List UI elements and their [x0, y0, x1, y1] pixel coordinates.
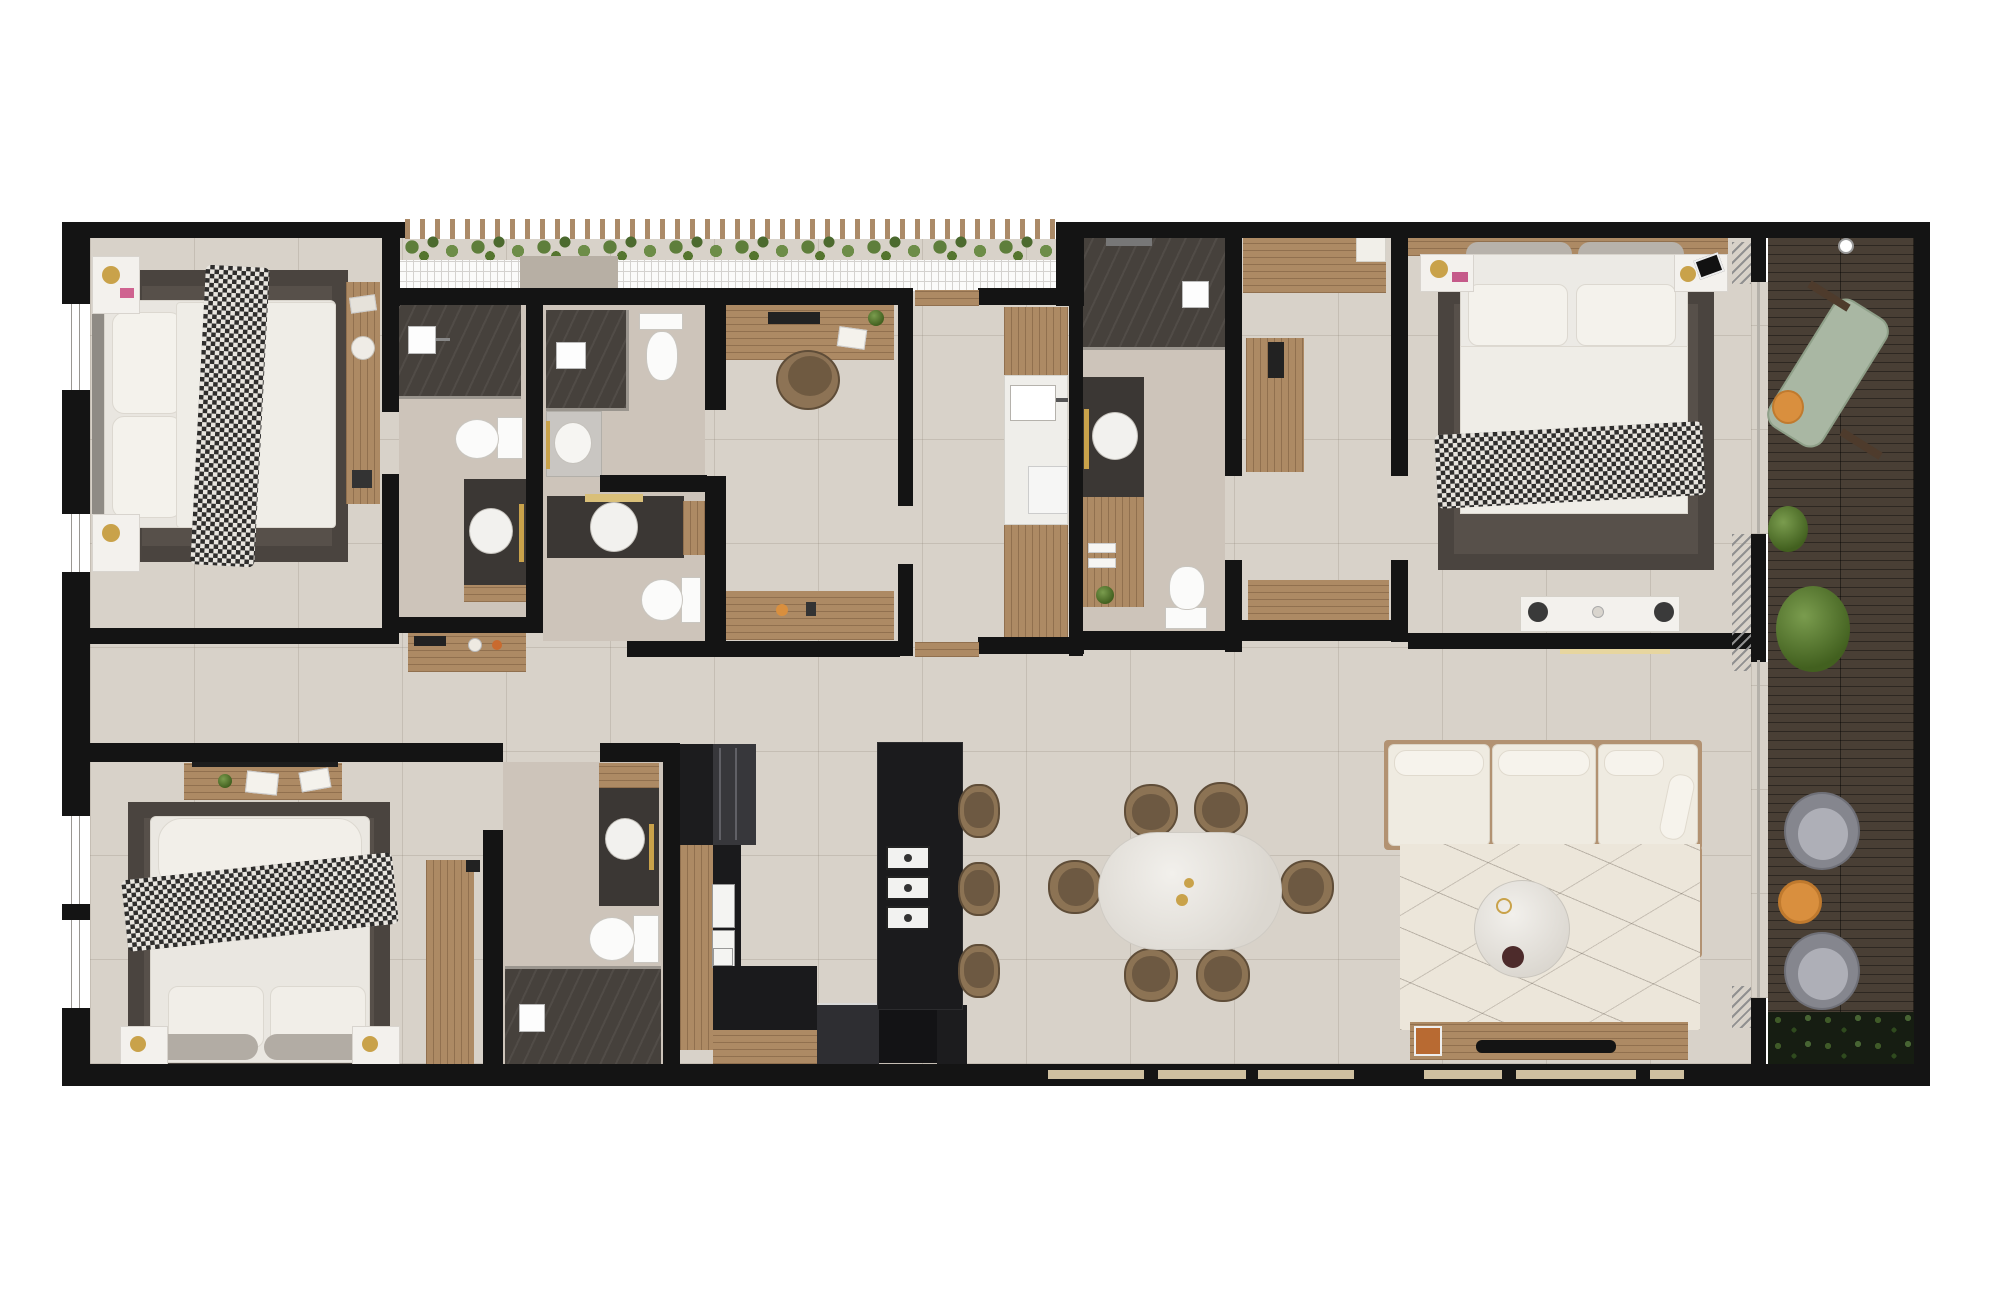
bath3-shelf: [683, 501, 705, 555]
wall-balcony-upper: [1751, 222, 1766, 282]
laundry-cabinet-top: [1004, 307, 1068, 375]
kitchen-counter-wood-bottom: [713, 1030, 817, 1064]
threshold-corridor-bottom: [915, 642, 979, 657]
kitchen-counter-black-end: [937, 1005, 967, 1064]
bedroom1-nightstand-top: [92, 256, 140, 314]
dining-table-candle-2: [1176, 894, 1188, 906]
closet-bench: [1248, 580, 1389, 621]
bedroom1-pillow-2: [112, 416, 182, 518]
balcony-ceiling-light: [1838, 238, 1854, 254]
laundry-faucet: [1056, 398, 1068, 402]
dining-chair-5-seat: [1132, 956, 1170, 992]
sofa-back-cushion-3: [1604, 750, 1664, 776]
wall-top-b: [1056, 222, 1930, 238]
glass-strip-bottom-6: [1650, 1070, 1684, 1079]
master-lamp-left: [1430, 260, 1448, 278]
bath4-towel-1: [1088, 543, 1116, 553]
glass-strip-bottom-3: [1258, 1070, 1354, 1079]
window-left-3: [62, 816, 90, 904]
bath1-shower-arm: [436, 338, 450, 341]
bath4-toilet-tank: [1165, 607, 1207, 629]
master-led-strip: [1560, 649, 1670, 654]
hall-credenza-bowl: [468, 638, 482, 652]
kitchen-fridge-handle-1: [719, 748, 721, 840]
balcony-side-table-2: [1778, 880, 1822, 924]
bath5-vanity-woodtop: [599, 763, 659, 788]
dining-chair-6-seat: [1204, 956, 1242, 992]
bath5-shower-glass: [505, 966, 661, 969]
bath1-shelf: [464, 585, 526, 602]
hall-credenza-flower: [492, 640, 502, 650]
office-bench-vase: [806, 602, 816, 616]
wall-closet-right-upper: [1391, 238, 1408, 476]
wall-top-a: [62, 222, 405, 238]
bedroom2-desk-plant: [218, 774, 232, 788]
bath4-towel-2: [1088, 558, 1116, 568]
wall-bath4-left: [1069, 238, 1083, 656]
glass-strip-bottom-1: [1048, 1070, 1144, 1079]
balcony-side-table-1: [1772, 390, 1804, 424]
master-book-left: [1452, 272, 1468, 282]
wall-office-top: [726, 288, 913, 305]
dining-chair-2-seat: [1202, 792, 1240, 828]
bath4-towel-bar-gold: [1084, 409, 1089, 469]
balcony-plant-small: [1768, 506, 1808, 552]
dining-chair-3-seat: [1058, 868, 1094, 906]
bedroom1-console-decor: [352, 470, 372, 488]
bath2-basin: [554, 422, 592, 464]
wall-balcony-lower: [1751, 998, 1766, 1074]
bath4-basin: [1092, 412, 1138, 460]
bath4-shower-head: [1182, 281, 1209, 308]
kitchen-fridge-handle-2: [735, 748, 737, 840]
curtain-zigzag-2: [1732, 534, 1751, 671]
laundry-washer: [1028, 466, 1068, 514]
bath4-shower-glass: [1079, 347, 1225, 350]
wall-corridor-top-right: [978, 288, 1058, 305]
island-burner-dot-1: [904, 854, 912, 862]
bath5-towel-bar-gold: [649, 824, 654, 870]
wall-bath4-bottom: [1077, 631, 1225, 650]
master-throw-houndstooth: [1434, 421, 1706, 509]
wall-bath2-top: [543, 288, 726, 305]
glass-strip-bottom-2: [1158, 1070, 1246, 1079]
bath1-toilet-bowl: [455, 419, 499, 459]
bedroom1-headboard: [92, 300, 104, 528]
bath1-shower-head: [408, 326, 436, 354]
wall-bath3-bottom: [627, 641, 726, 657]
wall-closet-right-lower: [1391, 560, 1408, 642]
master-dresser-knob: [1592, 606, 1604, 618]
office-laptop: [768, 312, 820, 324]
bedroom2-lamp-left: [130, 1036, 146, 1052]
balcony-armchair-1-cushion: [1798, 808, 1848, 860]
sliding-glass-line-1: [1757, 282, 1760, 534]
office-plant: [868, 310, 884, 326]
bath2-toilet-bowl: [646, 331, 678, 381]
wall-bath2-right-lower: [705, 476, 726, 656]
curtain-zigzag-1: [1732, 242, 1751, 284]
window-left-1: [62, 304, 90, 390]
bath5-shower-head: [519, 1004, 545, 1032]
bath1-basin: [469, 508, 513, 554]
bath1-towel-bar-gold: [519, 504, 524, 562]
kitchen-counter-black-corner: [713, 966, 817, 1030]
sofa-back-cushion-1: [1394, 750, 1484, 776]
kitchen-dishwasher: [817, 1005, 879, 1064]
wall-bath1-right: [526, 305, 543, 617]
wall-balcony-mid: [1751, 534, 1766, 662]
wall-bath4-right-lower: [1225, 560, 1242, 652]
closet-cabinet-inset: [1268, 342, 1284, 378]
wall-office-bottom: [726, 641, 900, 657]
master-pillow-left: [1468, 284, 1568, 346]
sliding-glass-line-2: [1757, 660, 1760, 998]
coffee-table-bowl: [1502, 946, 1524, 968]
kitchen-counter-wood-left: [680, 845, 713, 1050]
hall-credenza-tray: [414, 636, 446, 646]
kitchen-oven-1: [712, 884, 735, 928]
island-burner-dot-3: [904, 914, 912, 922]
closet-box-white: [1356, 236, 1386, 262]
kitchen-tall-cabinet: [680, 744, 713, 845]
bath2-toilet-tank: [639, 313, 683, 330]
balcony-planter-bed: [1768, 1012, 1914, 1064]
window-left-2: [62, 514, 90, 572]
office-bench-flower: [776, 604, 788, 616]
island-stool-2-seat: [964, 870, 994, 906]
island-stool-3-seat: [964, 952, 994, 988]
bedroom1-nightstand-bottom: [92, 514, 140, 572]
island-stool-1-seat: [964, 792, 994, 828]
glass-strip-bottom-5: [1516, 1070, 1636, 1079]
master-pillow-right: [1576, 284, 1676, 346]
bedroom1-lamp-top: [102, 266, 120, 284]
bedroom1-lamp-bottom: [102, 524, 120, 542]
kitchen-drawer-white: [713, 948, 733, 966]
balcony-plant-large: [1776, 586, 1850, 672]
wall-bath23-divider: [600, 475, 707, 492]
bedroom2-lamp-right: [362, 1036, 378, 1052]
office-chair-seat: [788, 356, 832, 396]
wall-br1-bottom: [78, 628, 399, 644]
wall-office-right-upper: [898, 288, 913, 506]
wall-br2-top: [78, 743, 503, 762]
master-lamp-right: [1680, 266, 1696, 282]
bath2-shower-glass-r: [626, 310, 629, 410]
floor-plan: [0, 0, 2000, 1300]
wall-br1-right-lower: [382, 474, 399, 630]
bedroom1-deco-book: [120, 288, 134, 298]
bath5-toilet-tank: [633, 915, 659, 963]
wall-closet-bottom: [1242, 620, 1392, 641]
bedroom2-wardrobe: [426, 860, 474, 1066]
wall-right: [1914, 222, 1930, 1074]
sofa-back-cushion-2: [1498, 750, 1590, 776]
bath3-toilet-bowl: [641, 579, 683, 621]
bath3-toilet-tank: [681, 577, 701, 623]
wall-bath2-right-upper: [705, 305, 726, 410]
bath3-light-bar: [585, 494, 643, 502]
master-speaker-left: [1528, 602, 1548, 622]
tv-panel: [1476, 1040, 1616, 1053]
glass-strip-bottom-4: [1424, 1070, 1502, 1079]
bedroom1-console-plate: [351, 336, 375, 360]
bath2-towel-bar-gold: [546, 421, 550, 469]
bedroom2-wardrobe-notch: [466, 860, 480, 872]
balcony-armchair-2-cushion: [1798, 948, 1848, 1000]
bath4-shelf-plant: [1096, 586, 1114, 604]
wall-bath1-bottom: [399, 617, 543, 633]
wall-br2-right: [483, 830, 503, 1085]
office-papers: [837, 326, 868, 350]
bedroom2-paper-1: [245, 770, 279, 795]
dining-table-candle-1: [1184, 878, 1194, 888]
wall-br1-right-upper: [382, 238, 399, 412]
window-left-4: [62, 920, 90, 1008]
laundry-cabinet-bottom: [1004, 525, 1068, 637]
wall-master-bottom: [1408, 633, 1751, 649]
laundry-sink: [1010, 385, 1056, 421]
curtain-zigzag-3: [1732, 986, 1751, 1028]
wall-bath5-right: [663, 743, 680, 1064]
bath3-basin: [590, 502, 638, 552]
wall-bath1-top: [399, 288, 543, 305]
threshold-corridor-top: [915, 290, 979, 306]
kitchen-cooktop-counter: [879, 1005, 937, 1063]
kitchen-dishwasher-edge: [818, 1003, 878, 1005]
wall-office-right-lower: [898, 564, 913, 656]
bath1-toilet-tank: [497, 417, 523, 459]
bath4-toilet-bowl: [1169, 566, 1205, 610]
dining-chair-4-seat: [1288, 868, 1324, 906]
dining-table: [1098, 832, 1282, 950]
master-speaker-right: [1654, 602, 1674, 622]
bath5-basin: [605, 818, 645, 860]
bath2-shower-head: [556, 342, 586, 369]
wall-bath4-right-upper: [1225, 238, 1242, 476]
tv-magazine: [1414, 1026, 1442, 1056]
dining-chair-1-seat: [1132, 794, 1170, 830]
coffee-table-tray-gold: [1496, 898, 1512, 914]
bedroom1-pillow-1: [112, 312, 182, 414]
island-burner-dot-2: [904, 884, 912, 892]
bath5-toilet-bowl: [589, 917, 635, 961]
bath1-shower-glass: [399, 396, 521, 399]
